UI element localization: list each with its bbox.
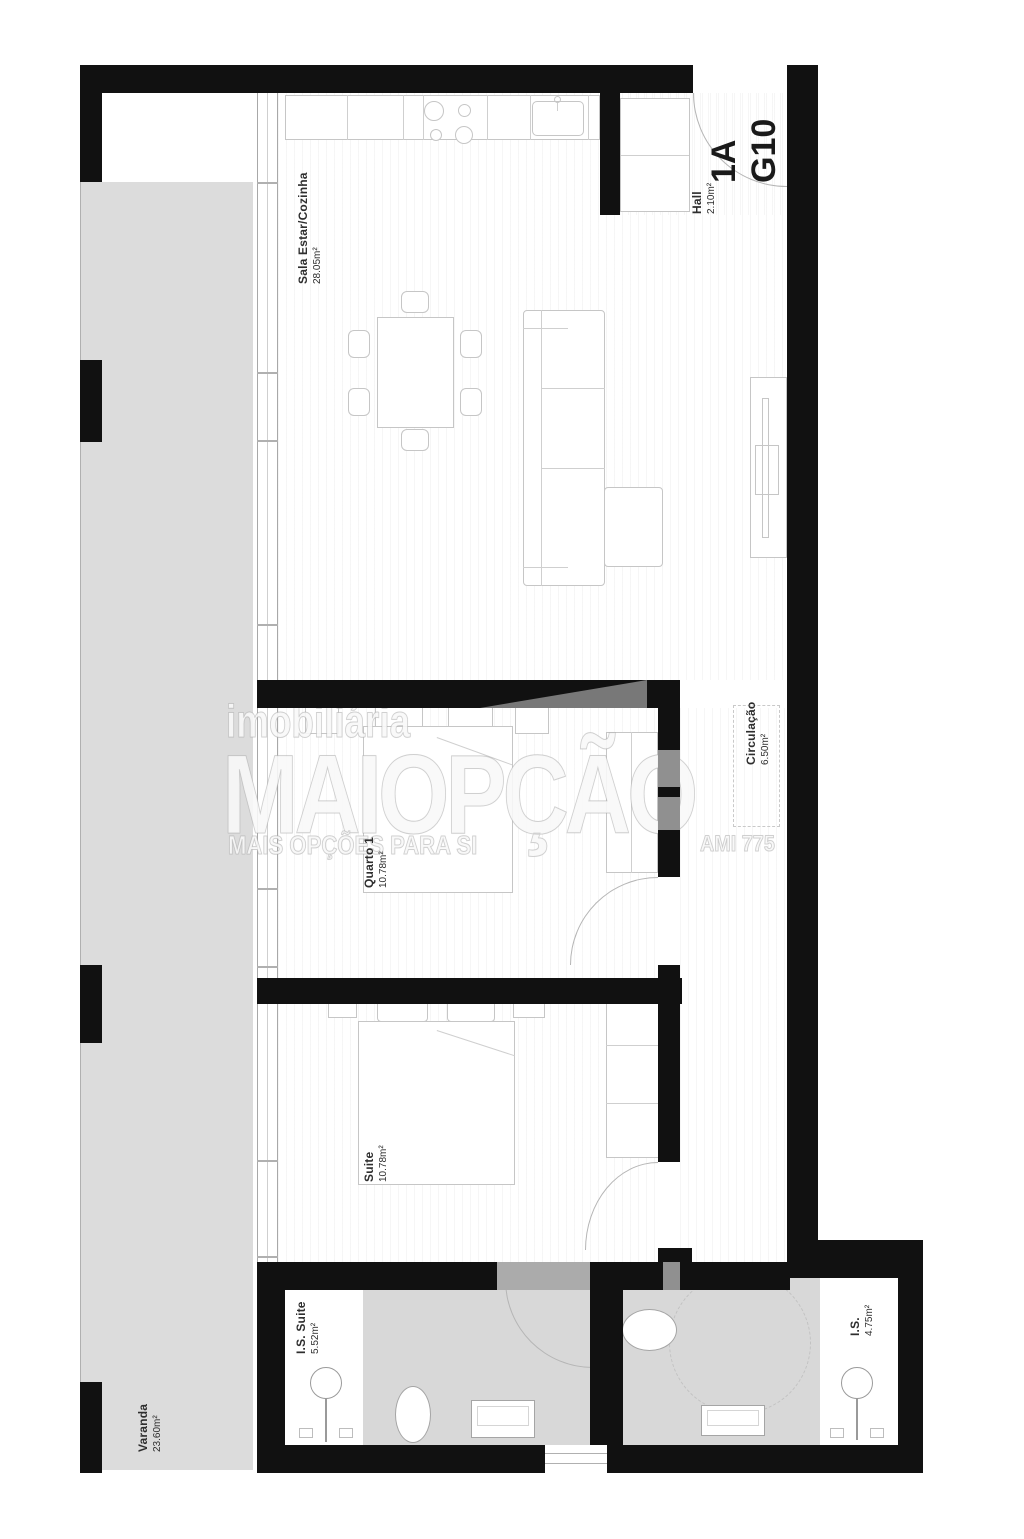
- washbasin: [310, 1367, 342, 1399]
- suite-bottom-wall: [257, 1262, 497, 1290]
- stove-burner: [458, 104, 471, 117]
- room-name: Hall: [690, 183, 705, 214]
- unit-number: 1A: [704, 119, 744, 183]
- washbasin-base: [299, 1428, 313, 1438]
- chair: [401, 291, 429, 313]
- exterior-wall-right-step: [787, 1240, 923, 1278]
- counter-divider: [588, 95, 589, 140]
- bathroom-door-swing: [669, 1272, 811, 1414]
- sofa-cushion-line: [541, 388, 605, 389]
- wardrobe-divider: [606, 1103, 663, 1104]
- sink-faucet: [554, 96, 561, 103]
- balcony-pillar: [80, 360, 102, 442]
- counter-divider: [423, 95, 424, 140]
- sofa-armrest-line: [523, 567, 568, 568]
- bathtub-inner: [477, 1406, 529, 1426]
- bathroom-divider-wall: [590, 1290, 623, 1445]
- corridor-wall: [658, 787, 680, 797]
- room-label-quarto1: Quarto 1 10.78m²: [362, 837, 391, 888]
- washbasin-base: [830, 1428, 844, 1438]
- window-sill-tick: [257, 372, 278, 374]
- stove-burner: [455, 126, 473, 144]
- sink-faucet-line: [557, 103, 558, 111]
- watermark-license: AMI 775: [700, 831, 775, 857]
- room-name: Sala Estar/Cozinha: [296, 172, 311, 284]
- stove-burner: [430, 129, 442, 141]
- bathroom-door-gap: [663, 1262, 680, 1290]
- room-name: I.S.: [848, 1305, 863, 1336]
- suite-corridor-wall: [658, 1004, 680, 1162]
- exterior-wall-right-lower: [898, 1278, 923, 1473]
- sofa-armrest-line: [523, 328, 568, 329]
- sofa-cushion-line: [541, 468, 605, 469]
- bedroom-divider-wall: [257, 978, 682, 1004]
- dining-table: [377, 317, 454, 428]
- room-area: 2.10m²: [706, 183, 719, 214]
- washbasin: [841, 1367, 873, 1399]
- room-name: Varanda: [136, 1404, 151, 1452]
- window-sill-tick: [257, 966, 278, 968]
- corridor-wall: [658, 830, 680, 877]
- suite-bath-door-gap: [497, 1262, 590, 1290]
- window-sill-tick: [257, 1256, 278, 1258]
- counter-divider: [487, 95, 488, 140]
- bathroom-top-wall: [590, 1262, 790, 1290]
- tv-console-box: [755, 445, 779, 495]
- kitchen-sink: [532, 101, 584, 136]
- exterior-wall-bottom-left: [257, 1445, 545, 1473]
- washbasin-stem: [325, 1398, 327, 1442]
- room-label-suite: Suite 10.78m²: [362, 1145, 391, 1182]
- room-area: 4.75m²: [864, 1305, 877, 1336]
- chair: [348, 330, 370, 358]
- unit-label: 1A G10: [704, 119, 784, 183]
- washbasin-stem: [856, 1398, 858, 1440]
- hall-closet-divider: [621, 155, 689, 156]
- room-label-is: I.S. 4.75m²: [848, 1305, 877, 1336]
- room-label-is-suite: I.S. Suite 5.52m²: [294, 1301, 323, 1354]
- window-glass-line: [267, 93, 268, 1264]
- sofa: [523, 310, 605, 586]
- chair: [348, 388, 370, 416]
- hall-kitchen-wall: [600, 93, 620, 215]
- chair: [460, 388, 482, 416]
- exterior-wall-right: [787, 65, 818, 1244]
- stove-burner: [424, 101, 444, 121]
- window-sill-tick: [257, 624, 278, 626]
- watermark-tagline: MAIS OPÇÕES PARA SI: [228, 830, 477, 861]
- wardrobe-suite: [606, 988, 663, 1158]
- bottom-window-line: [545, 1463, 607, 1464]
- room-name: Suite: [362, 1145, 377, 1182]
- sofa-chaise: [604, 487, 663, 567]
- chair: [460, 330, 482, 358]
- corridor-wall: [658, 680, 680, 750]
- exterior-wall-bottom-right: [607, 1445, 923, 1473]
- chair: [401, 429, 429, 451]
- window-sill-tick: [257, 182, 278, 184]
- bottom-window-line: [545, 1453, 607, 1454]
- room-label-varanda: Varanda 23.60m²: [136, 1404, 165, 1452]
- corridor-wall-gap: [658, 797, 680, 830]
- room-area: 5.52m²: [310, 1301, 323, 1354]
- room-area: 10.78m²: [378, 1145, 391, 1182]
- room-label-circulacao: Circulação 6.50m²: [744, 702, 773, 765]
- counter-divider: [403, 95, 404, 140]
- washbasin-base: [339, 1428, 353, 1438]
- window-sill-tick: [257, 440, 278, 442]
- room-area: 28.05m²: [312, 172, 325, 284]
- window-sill-tick: [257, 888, 278, 890]
- room-area: 10.78m²: [378, 837, 391, 888]
- room-area: 23.60m²: [152, 1404, 165, 1452]
- toilet: [395, 1386, 431, 1443]
- room-name: Circulação: [744, 702, 759, 765]
- counter-divider: [347, 95, 348, 140]
- floor-plan: imobiliária MAIOPÇÃO MAIS OPÇÕES PARA SI…: [0, 0, 1024, 1539]
- unit-code: G10: [744, 119, 784, 183]
- room-area: 6.50m²: [760, 702, 773, 765]
- exterior-wall-top: [80, 65, 693, 93]
- bathtub-inner: [707, 1410, 759, 1426]
- wardrobe-divider: [606, 1045, 663, 1046]
- balcony-pillar: [80, 65, 102, 182]
- room-label-sala: Sala Estar/Cozinha 28.05m²: [296, 172, 325, 284]
- balcony-pillar: [80, 965, 102, 1043]
- washbasin-base: [870, 1428, 884, 1438]
- sofa-back-line: [541, 310, 542, 586]
- corridor-wall-gap: [658, 750, 680, 787]
- toilet: [622, 1309, 677, 1351]
- counter-divider: [530, 95, 531, 140]
- room-label-hall: Hall 2.10m²: [690, 183, 719, 214]
- window-sill-tick: [257, 1160, 278, 1162]
- room-name: I.S. Suite: [294, 1301, 309, 1354]
- balcony-pillar: [80, 1382, 102, 1473]
- bottom-window: [545, 1445, 607, 1473]
- room-name: Quarto 1: [362, 837, 377, 888]
